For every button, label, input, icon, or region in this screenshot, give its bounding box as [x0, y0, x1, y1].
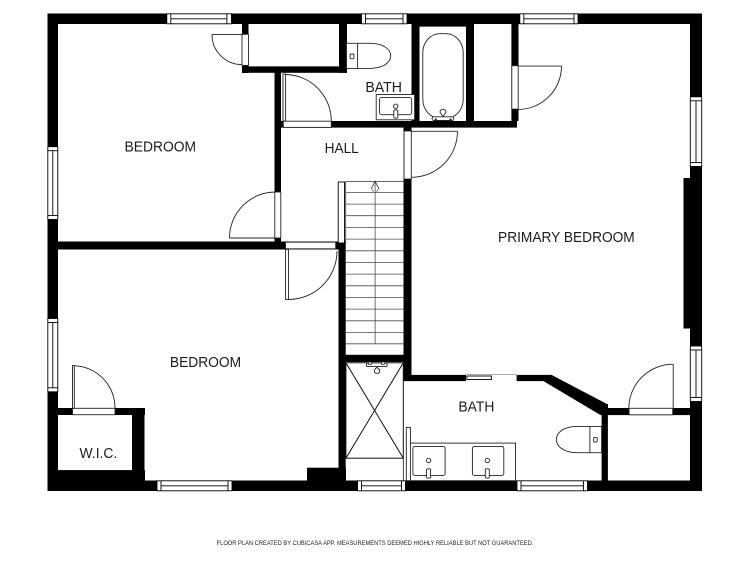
svg-text:BATH: BATH	[365, 80, 402, 96]
svg-text:HALL: HALL	[325, 141, 359, 157]
svg-text:W.I.C.: W.I.C.	[80, 446, 118, 462]
svg-text:BEDROOM: BEDROOM	[170, 355, 241, 371]
svg-text:BATH: BATH	[458, 399, 494, 415]
svg-text:FLOOR PLAN CREATED BY CUBICASA: FLOOR PLAN CREATED BY CUBICASA APP. MEAS…	[217, 540, 534, 547]
svg-text:PRIMARY BEDROOM: PRIMARY BEDROOM	[498, 230, 635, 246]
svg-text:BEDROOM: BEDROOM	[125, 140, 197, 156]
